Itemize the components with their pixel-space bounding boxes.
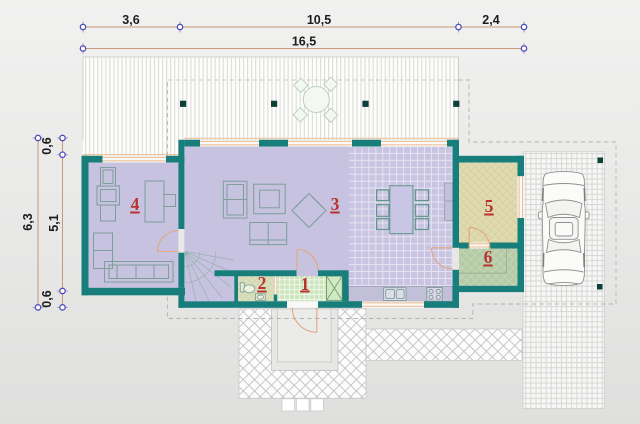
svg-text:3,6: 3,6 (122, 13, 139, 27)
svg-text:4: 4 (131, 194, 140, 214)
svg-text:6: 6 (484, 247, 493, 267)
svg-text:5,1: 5,1 (47, 214, 61, 231)
svg-text:6,3: 6,3 (21, 213, 35, 230)
svg-text:2,4: 2,4 (482, 13, 499, 27)
svg-text:5: 5 (485, 196, 494, 216)
svg-text:3: 3 (331, 194, 340, 214)
svg-text:0,6: 0,6 (40, 290, 54, 307)
svg-text:10,5: 10,5 (307, 13, 331, 27)
svg-text:2: 2 (258, 273, 267, 293)
svg-text:0,6: 0,6 (40, 137, 54, 154)
svg-text:16,5: 16,5 (292, 35, 316, 49)
